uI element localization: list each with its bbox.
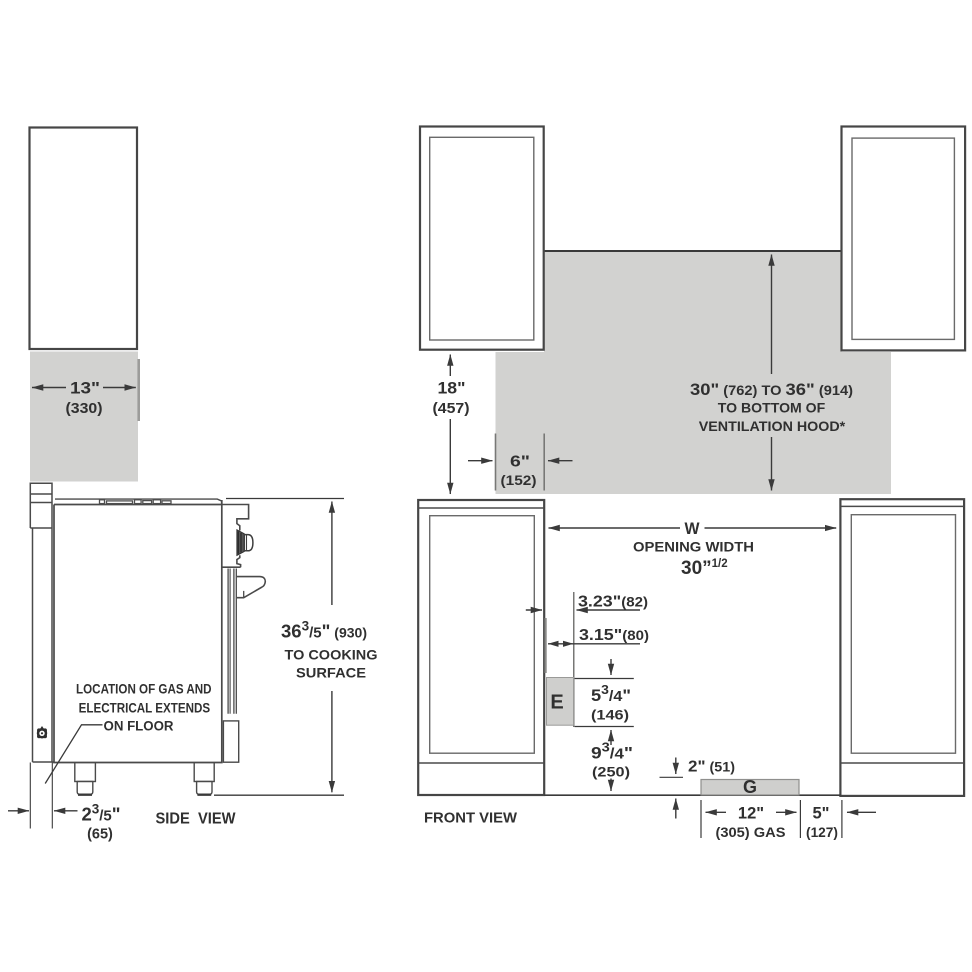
svg-text:6": 6" — [510, 454, 530, 471]
svg-text:SIDE VIEW: SIDE VIEW — [156, 811, 236, 828]
svg-text:(127): (127) — [806, 824, 838, 840]
svg-text:12": 12" — [738, 805, 764, 823]
svg-text:G: G — [743, 777, 757, 797]
svg-text:FRONT VIEW: FRONT VIEW — [424, 811, 517, 827]
svg-text:(152): (152) — [501, 472, 537, 488]
svg-text:ELECTRICAL EXTENDS: ELECTRICAL EXTENDS — [79, 701, 211, 716]
svg-text:SURFACE: SURFACE — [296, 665, 366, 681]
svg-text:30" (762) TO 36" (914): 30" (762) TO 36" (914) — [690, 380, 853, 399]
svg-text:ON FLOOR: ON FLOOR — [104, 719, 174, 734]
svg-text:TO BOTTOM OF: TO BOTTOM OF — [718, 401, 826, 416]
svg-text:3.15"(80): 3.15"(80) — [579, 627, 649, 644]
svg-text:(250): (250) — [592, 764, 630, 780]
svg-text:(457): (457) — [433, 401, 470, 417]
svg-text:OPENING WIDTH: OPENING WIDTH — [633, 540, 754, 555]
svg-text:(65): (65) — [87, 827, 113, 843]
svg-text:13": 13" — [70, 379, 100, 398]
svg-text:(330): (330) — [66, 401, 103, 417]
svg-text:TO COOKING: TO COOKING — [285, 647, 378, 663]
svg-text:(146): (146) — [591, 707, 629, 723]
svg-text:18": 18" — [438, 380, 466, 398]
svg-text:VENTILATION HOOD*: VENTILATION HOOD* — [699, 419, 846, 434]
svg-text:2" (51): 2" (51) — [688, 759, 735, 776]
svg-text:3.23"(82): 3.23"(82) — [578, 594, 648, 611]
svg-text:W: W — [685, 520, 700, 538]
svg-text:E: E — [550, 692, 563, 714]
svg-text:LOCATION OF GAS AND: LOCATION OF GAS AND — [76, 682, 212, 697]
svg-text:(305) GAS: (305) GAS — [716, 824, 786, 840]
svg-text:5": 5" — [813, 805, 830, 823]
